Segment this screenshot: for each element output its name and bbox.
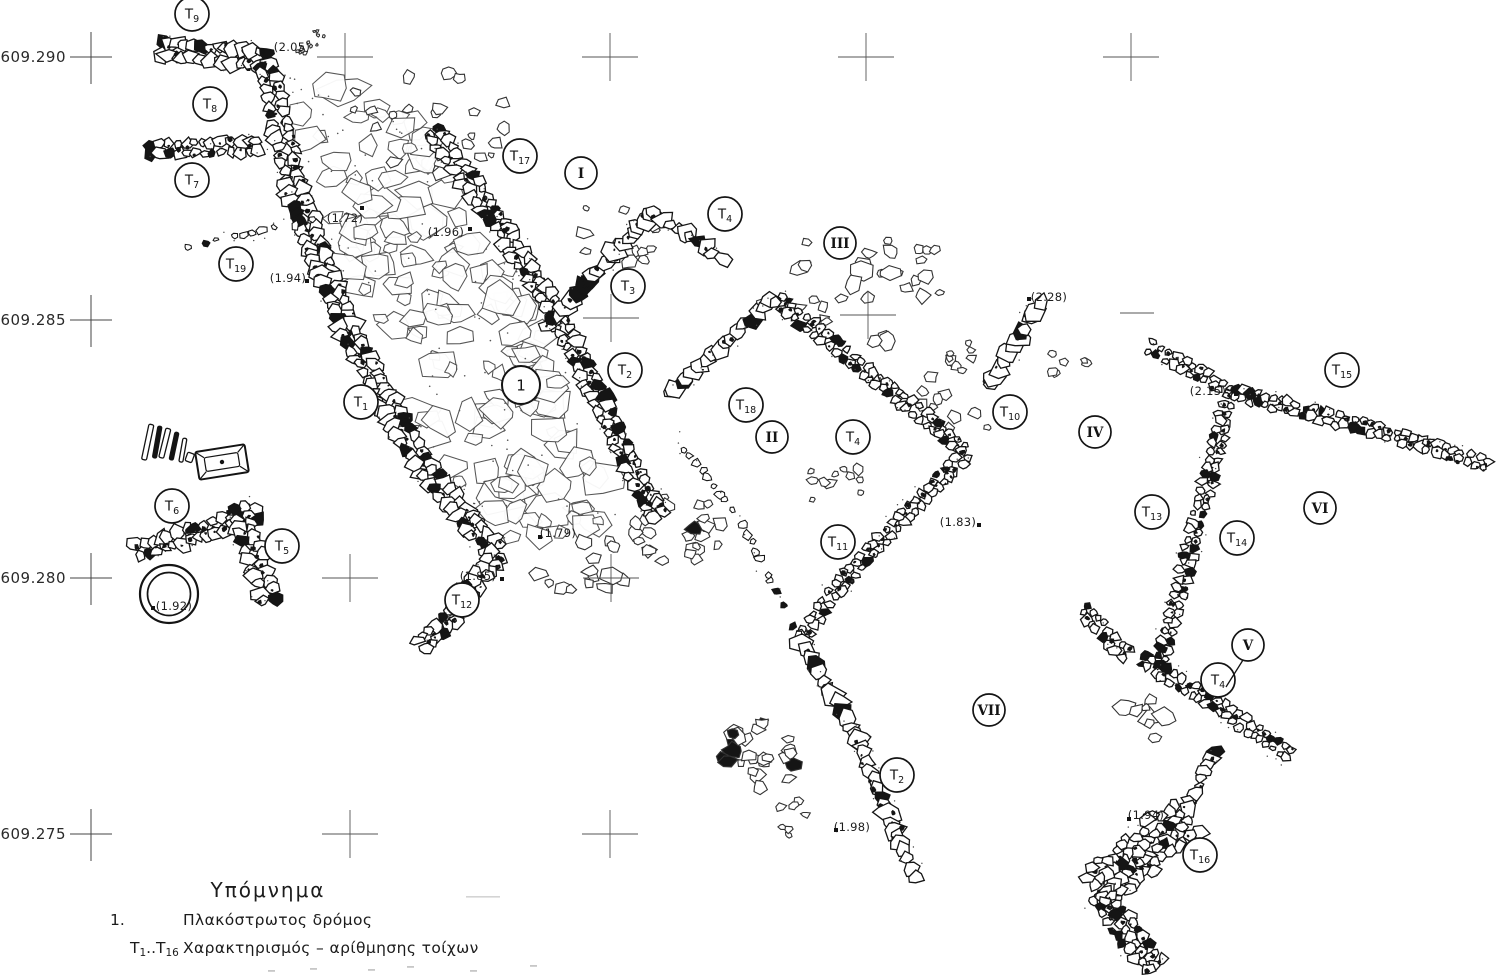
wall-stones — [143, 134, 265, 162]
grid-cross — [322, 554, 378, 602]
legend-title: Υπόμνημα — [210, 878, 326, 902]
grid-coordinate-label: 609.275 — [0, 825, 66, 843]
wall-marker-T7: T7 — [175, 163, 209, 197]
area-marker-V: V — [1232, 629, 1264, 661]
area-marker-VI: VI — [1304, 492, 1336, 524]
svg-text:(2.15): (2.15) — [1190, 384, 1226, 398]
wall-marker-T8: T8 — [193, 87, 227, 121]
legend-partial-line — [268, 896, 537, 972]
area-marker-III: III — [824, 227, 856, 259]
wall-stones — [664, 292, 781, 399]
wall-stones — [1081, 603, 1135, 664]
area-marker-I: I — [565, 157, 597, 189]
svg-text:(1.92): (1.92) — [156, 599, 192, 613]
elevation-label: (1.94) — [1127, 808, 1164, 822]
grid-coordinate-label: 609.290 — [0, 48, 66, 66]
svg-text:(1.96): (1.96) — [428, 225, 464, 239]
svg-text:(1.94): (1.94) — [1128, 808, 1164, 822]
elevation-label: (2.28) — [1027, 290, 1067, 304]
elevation-label: (1.83) — [940, 515, 981, 529]
wall-marker-T18: T18 — [729, 388, 763, 422]
svg-text:(2.28): (2.28) — [1031, 290, 1067, 304]
grid-coordinate-label: 609.285 — [0, 311, 66, 329]
wall-marker-T13: T13 — [1135, 495, 1169, 529]
wall-marker-T19: T19 — [219, 247, 253, 281]
legend: Υπόμνημα 1.Πλακόστρωτος δρόμοςT1..T16Χαρ… — [110, 878, 537, 972]
legend-item-key: T1..T16 — [129, 939, 179, 959]
wall-marker-T10: T10 — [993, 395, 1027, 429]
svg-text:(1.85): (1.85) — [460, 569, 496, 583]
wall-marker-T14: T14 — [1220, 521, 1254, 555]
well-feature — [140, 565, 198, 623]
legend-item-text: Πλακόστρωτος δρόμος — [183, 911, 372, 929]
svg-text:III: III — [831, 236, 850, 252]
wall-stones — [983, 293, 1048, 390]
elevation-label: (1.94) — [270, 271, 309, 285]
grid-cross — [1103, 33, 1159, 81]
wall-stones — [789, 634, 924, 883]
road-marker-1: 1 — [502, 366, 540, 404]
wall-marker-T4: T4 — [836, 420, 870, 454]
elevation-label: (1.92) — [151, 599, 192, 613]
area-marker-IV: IV — [1079, 416, 1111, 448]
legend-item: 1.Πλακόστρωτος δρόμος — [110, 911, 372, 929]
wall-marker-T6: T6 — [155, 489, 189, 523]
elevation-label: (1.85) — [460, 569, 504, 583]
wall-marker-T15: T15 — [1325, 353, 1359, 387]
rectangular-feature — [195, 444, 249, 479]
svg-text:VII: VII — [976, 703, 1000, 719]
wall-marker-T11: T11 — [821, 525, 855, 559]
svg-text:(1.98): (1.98) — [834, 820, 870, 834]
wall-stones — [1228, 384, 1495, 472]
legend-item-key: 1. — [110, 911, 125, 929]
svg-text:(2.05): (2.05) — [274, 40, 310, 54]
svg-text:1: 1 — [516, 377, 526, 395]
grid-cross — [582, 33, 638, 81]
legend-item: T1..T16Χαρακτηρισμός – αρίθμησης τοίχων — [129, 939, 479, 959]
grid-cross — [838, 33, 894, 81]
wall-marker-T16: T16 — [1183, 838, 1217, 872]
excavation-plan-page: 609.290609.285609.280609.275 T9T8T7T19T1… — [0, 0, 1509, 978]
area-marker-II: II — [756, 421, 788, 453]
svg-text:(1.94): (1.94) — [270, 271, 306, 285]
wall-marker-T2: T2 — [608, 353, 642, 387]
wall-stones — [1180, 746, 1225, 817]
wall-marker-T5: T5 — [265, 529, 299, 563]
wall-marker-T1: T1 — [344, 385, 378, 419]
wall-marker-T17: T17 — [503, 139, 537, 173]
grid-coordinate-label: 609.280 — [0, 569, 66, 587]
svg-text:(1.72): (1.72) — [327, 211, 363, 225]
elevation-label: (1.79) — [538, 526, 576, 540]
wall-marker-T9: T9 — [175, 0, 209, 31]
stone-slivers — [142, 424, 195, 463]
svg-text:VI: VI — [1311, 501, 1329, 517]
grid-cross — [582, 810, 638, 858]
svg-text:IV: IV — [1087, 425, 1104, 441]
wall-marker-T12: T12 — [445, 583, 479, 617]
svg-text:II: II — [766, 430, 779, 446]
wall-stones — [538, 207, 661, 331]
svg-text:(1.79): (1.79) — [540, 526, 576, 540]
wall-marker-T2: T2 — [880, 758, 914, 792]
area-marker-VII: VII — [973, 694, 1005, 726]
svg-text:I: I — [578, 166, 584, 182]
svg-text:(1.83): (1.83) — [940, 515, 976, 529]
wall-stones — [1084, 885, 1168, 974]
legend-item-text: Χαρακτηρισμός – αρίθμησης τοίχων — [183, 939, 479, 957]
wall-marker-T4: T4 — [708, 197, 742, 231]
svg-text:V: V — [1242, 638, 1254, 654]
elevation-label: (1.98) — [834, 820, 870, 834]
grid-cross — [322, 810, 378, 858]
site-plan-drawing: 609.290609.285609.280609.275 T9T8T7T19T1… — [0, 0, 1509, 978]
annotation-layer: T9T8T7T19T17T4T3T2T1T18T4T10T13T14T15T6T… — [151, 0, 1359, 872]
wall-marker-T3: T3 — [611, 269, 645, 303]
